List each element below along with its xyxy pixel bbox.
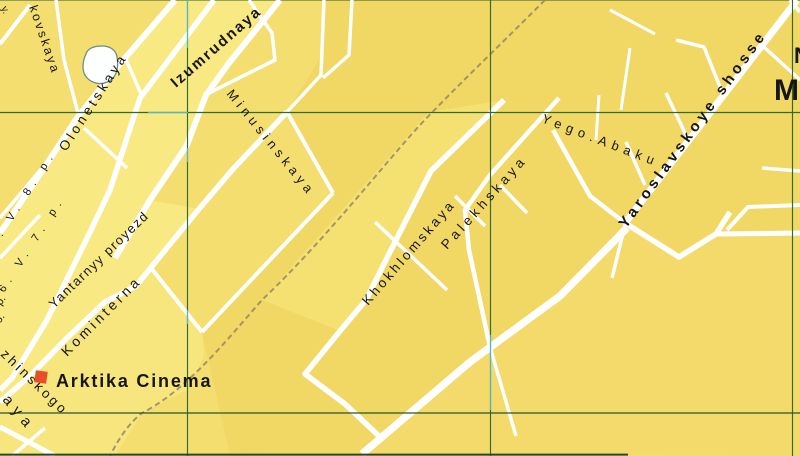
svg-text:M: M bbox=[774, 74, 799, 107]
svg-text:Arktika Cinema: Arktika Cinema bbox=[56, 371, 212, 391]
svg-text:N: N bbox=[794, 43, 800, 68]
